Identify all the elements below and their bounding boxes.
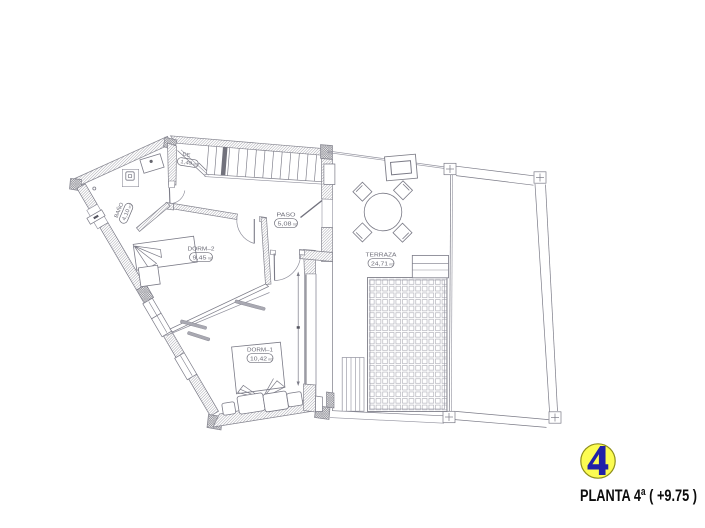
svg-text:24,71: 24,71 [371, 262, 388, 268]
svg-text:TERRAZA: TERRAZA [366, 253, 397, 259]
svg-text:DORM–2: DORM–2 [188, 247, 215, 253]
svg-text:4: 4 [588, 439, 609, 485]
svg-text:m2: m2 [389, 263, 394, 267]
svg-text:m2: m2 [193, 162, 198, 167]
svg-text:PASO: PASO [277, 213, 296, 219]
svg-text:PLANTA 4ª ( +9.75 ): PLANTA 4ª ( +9.75 ) [580, 487, 697, 505]
svg-text:m2: m2 [268, 358, 273, 362]
svg-text:10,42: 10,42 [250, 357, 267, 363]
svg-text:9,45: 9,45 [193, 256, 208, 262]
svg-text:DORM–1: DORM–1 [247, 348, 273, 354]
svg-text:m2: m2 [208, 257, 213, 261]
svg-text:m2: m2 [293, 223, 298, 227]
svg-text:5,08: 5,08 [278, 222, 293, 228]
